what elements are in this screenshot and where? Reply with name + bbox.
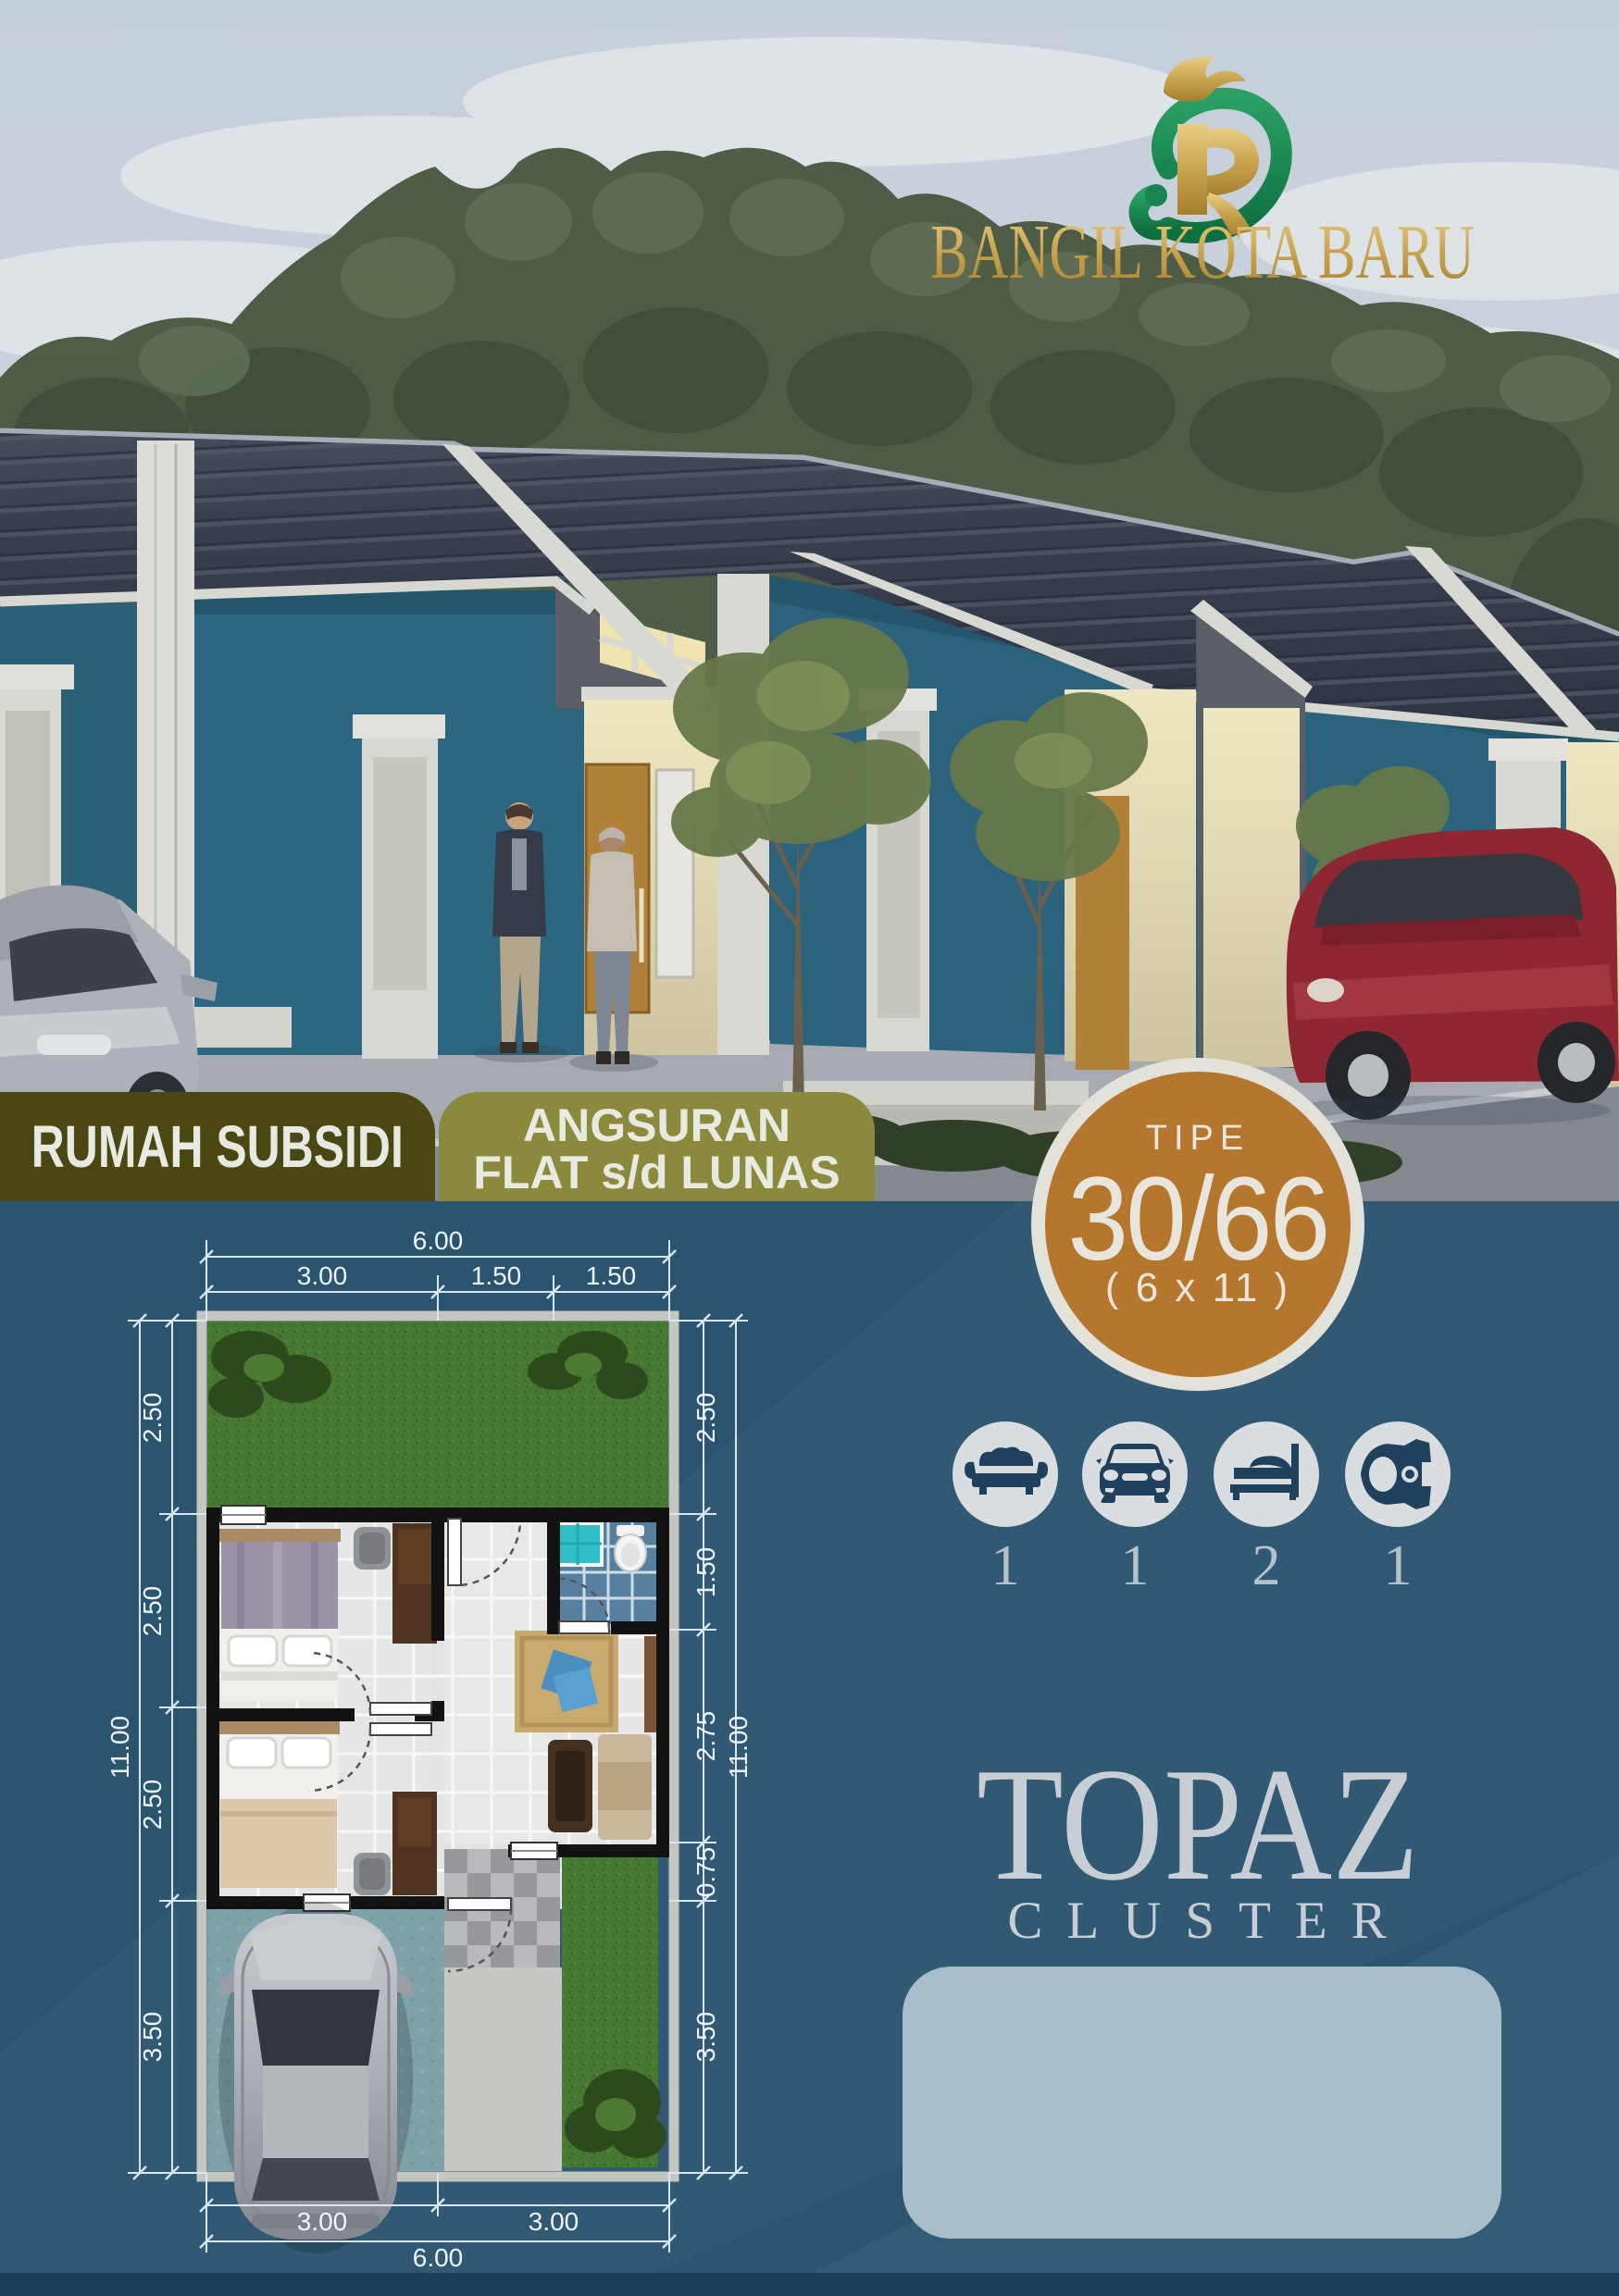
svg-text:2.75: 2.75 bbox=[691, 1711, 720, 1762]
svg-text:2.50: 2.50 bbox=[138, 1393, 167, 1444]
svg-text:6.00: 6.00 bbox=[413, 2243, 464, 2272]
svg-text:1.50: 1.50 bbox=[586, 1261, 637, 1290]
svg-text:2.50: 2.50 bbox=[691, 1393, 720, 1444]
svg-text:1: 1 bbox=[1384, 1534, 1413, 1597]
svg-text:3.00: 3.00 bbox=[297, 2207, 348, 2236]
svg-text:BANGIL KOTA BARU: BANGIL KOTA BARU bbox=[930, 209, 1475, 295]
svg-text:3.50: 3.50 bbox=[138, 2012, 167, 2063]
svg-text:2.50: 2.50 bbox=[138, 1780, 167, 1831]
svg-text:1: 1 bbox=[1121, 1534, 1150, 1597]
svg-text:0.75: 0.75 bbox=[691, 1847, 720, 1898]
svg-text:3.00: 3.00 bbox=[529, 2207, 579, 2236]
svg-text:1.50: 1.50 bbox=[691, 1547, 720, 1598]
svg-text:11.00: 11.00 bbox=[724, 1716, 753, 1779]
svg-text:1: 1 bbox=[991, 1534, 1020, 1597]
svg-text:11.00: 11.00 bbox=[106, 1716, 134, 1779]
svg-text:TOPAZ: TOPAZ bbox=[977, 1740, 1419, 1914]
svg-text:2: 2 bbox=[1252, 1534, 1281, 1597]
svg-text:3.50: 3.50 bbox=[691, 2012, 720, 2063]
svg-text:1.50: 1.50 bbox=[471, 1261, 522, 1290]
svg-text:6.00: 6.00 bbox=[413, 1226, 464, 1255]
svg-text:3.00: 3.00 bbox=[297, 1261, 348, 1290]
svg-text:CLUSTER: CLUSTER bbox=[1007, 1892, 1410, 1950]
svg-text:2.50: 2.50 bbox=[138, 1586, 167, 1637]
